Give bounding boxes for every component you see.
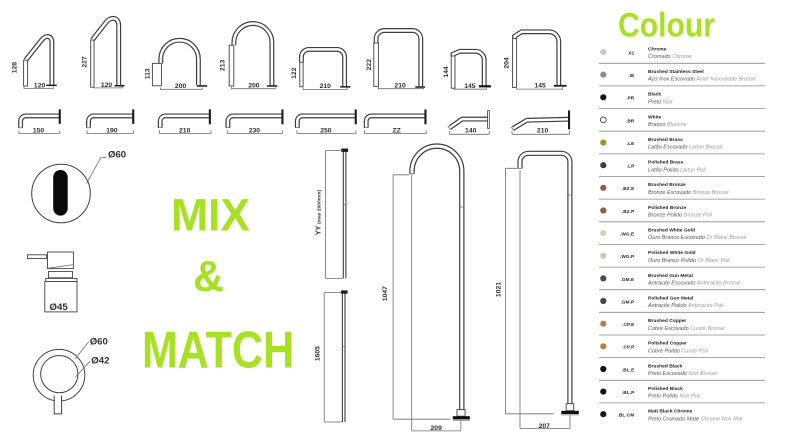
svg-text:Brushed Black: Brushed Black xyxy=(648,363,683,369)
svg-text:Polished Gun Metal: Polished Gun Metal xyxy=(648,295,694,301)
svg-text:Latão Escovado Laiton Brossé: Latão Escovado Laiton Brossé xyxy=(648,145,723,151)
svg-text:209: 209 xyxy=(431,425,443,432)
svg-text:200: 200 xyxy=(175,83,187,90)
svg-text:Aço Inox Escovado Acier Inoxyd: Aço Inox Escovado Acier Inoxydable Bross… xyxy=(647,77,756,83)
svg-text:210: 210 xyxy=(394,83,406,90)
svg-text:.BZ.E: .BZ.E xyxy=(622,186,634,191)
svg-text:120: 120 xyxy=(101,82,113,89)
svg-text:.CP.E: .CP.E xyxy=(622,322,634,327)
svg-text:150: 150 xyxy=(33,128,45,135)
svg-text:.LP: .LP xyxy=(627,164,635,169)
svg-text:.BL.E: .BL.E xyxy=(622,367,634,372)
svg-text:.GM.P: .GM.P xyxy=(621,299,635,304)
svg-text:1021: 1021 xyxy=(495,282,502,297)
svg-text:Cromado Chrome: Cromado Chrome xyxy=(648,54,692,60)
svg-text:.BL.P: .BL.P xyxy=(622,390,634,395)
svg-text:1047: 1047 xyxy=(382,286,389,301)
svg-text:.IE: .IE xyxy=(628,73,634,78)
svg-text:207: 207 xyxy=(539,423,551,430)
svg-text:Brushed Gun Metal: Brushed Gun Metal xyxy=(648,273,693,279)
svg-text:Ø45: Ø45 xyxy=(50,302,69,313)
svg-text:.LE: .LE xyxy=(627,141,635,146)
svg-text:Colour: Colour xyxy=(618,7,715,45)
svg-text:Cobre Polido Cuivre Poli: Cobre Polido Cuivre Poli xyxy=(648,348,709,354)
svg-text:222: 222 xyxy=(366,59,373,71)
svg-text:210: 210 xyxy=(537,128,549,135)
svg-text:Ø42: Ø42 xyxy=(91,356,109,367)
svg-text:.GM.E: .GM.E xyxy=(621,277,635,282)
svg-text:Cobre Escovado Cuivre Brossé: Cobre Escovado Cuivre Brossé xyxy=(648,326,725,332)
svg-text:250: 250 xyxy=(320,128,332,135)
svg-text:Preto Noir: Preto Noir xyxy=(648,99,674,105)
svg-text:.CP.P: .CP.P xyxy=(622,345,634,350)
svg-text:Polished Brass: Polished Brass xyxy=(648,160,684,166)
svg-text:Brushed Copper: Brushed Copper xyxy=(648,318,686,324)
svg-text:Latão Polido Laiton Poli: Latão Polido Laiton Poli xyxy=(648,167,707,173)
svg-text:Chrome: Chrome xyxy=(648,46,667,52)
svg-text:.WG.E: .WG.E xyxy=(620,232,634,237)
svg-text:200: 200 xyxy=(248,83,260,90)
svg-text:.PR: .PR xyxy=(626,96,635,101)
svg-text:.BR: .BR xyxy=(626,118,635,123)
svg-text:204: 204 xyxy=(504,57,511,69)
svg-text:.BZ.P: .BZ.P xyxy=(622,209,634,214)
svg-text:Antracite Polido Anthracite Po: Antracite Polido Anthracite Poli xyxy=(647,303,724,309)
svg-text:Preto Cromado Mate Chrome Noir: Preto Cromado Mate Chrome Noir Mat xyxy=(648,416,743,422)
svg-text:Brushed Bronze: Brushed Bronze xyxy=(648,182,686,188)
svg-text:Polished Copper: Polished Copper xyxy=(648,341,687,347)
svg-text:210: 210 xyxy=(179,128,191,135)
svg-text:YY (max 2000mm): YY (max 2000mm) xyxy=(316,190,323,236)
svg-text:Bronze Polido Bronze Poli: Bronze Polido Bronze Poli xyxy=(648,213,713,219)
svg-text:White: White xyxy=(648,114,662,120)
svg-text:145: 145 xyxy=(464,83,476,90)
svg-text:227: 227 xyxy=(81,56,88,68)
svg-text:.01: .01 xyxy=(627,50,634,55)
svg-text:.WG.P: .WG.P xyxy=(620,254,634,259)
svg-text:Brushed White Gold: Brushed White Gold xyxy=(648,228,695,234)
svg-text:Polished Black: Polished Black xyxy=(648,386,683,392)
svg-text:Polished Bronze: Polished Bronze xyxy=(648,205,687,211)
svg-text:1605: 1605 xyxy=(314,346,321,361)
svg-text:ZZ: ZZ xyxy=(392,128,400,135)
svg-text:213: 213 xyxy=(219,59,226,71)
svg-text:230: 230 xyxy=(249,128,261,135)
svg-text:Ø60: Ø60 xyxy=(90,336,108,347)
svg-text:MATCH: MATCH xyxy=(142,321,294,379)
svg-text:&: & xyxy=(193,252,224,301)
svg-text:Ø60: Ø60 xyxy=(108,149,126,160)
svg-text:MIX: MIX xyxy=(171,189,250,240)
svg-text:210: 210 xyxy=(320,83,332,90)
svg-text:.BL.CM: .BL.CM xyxy=(618,413,635,418)
svg-text:Matt Black Chrome: Matt Black Chrome xyxy=(648,409,693,415)
svg-text:Brushed Stainless Steel: Brushed Stainless Steel xyxy=(648,69,704,75)
svg-text:Branco Blanche: Branco Blanche xyxy=(648,122,687,128)
svg-text:Brushed Brass: Brushed Brass xyxy=(648,137,683,143)
svg-text:Black: Black xyxy=(648,92,661,98)
svg-text:Preto Escovado Noir Brossé: Preto Escovado Noir Brossé xyxy=(648,371,717,377)
svg-text:145: 145 xyxy=(534,83,546,90)
svg-text:Ouro Branco Escovado Or Blanc: Ouro Branco Escovado Or Blanc Brossé xyxy=(648,235,746,241)
svg-text:140: 140 xyxy=(465,128,477,135)
svg-text:Bronze Escovado Bronze Brossé: Bronze Escovado Bronze Brossé xyxy=(648,190,729,196)
svg-text:120: 120 xyxy=(34,82,46,89)
svg-text:Antracite Escovado Anthracite: Antracite Escovado Anthracite Brossé xyxy=(647,281,740,287)
svg-text:Preto Polido Noir Poli: Preto Polido Noir Poli xyxy=(648,394,701,400)
svg-text:Ouro Branco Polido Or Blanc Po: Ouro Branco Polido Or Blanc Poli xyxy=(648,258,730,264)
svg-text:122: 122 xyxy=(291,67,298,79)
svg-text:113: 113 xyxy=(144,68,151,79)
svg-text:128: 128 xyxy=(12,62,19,74)
svg-text:190: 190 xyxy=(106,128,118,135)
svg-text:144: 144 xyxy=(443,66,450,78)
svg-text:Polished White Gold: Polished White Gold xyxy=(648,250,696,256)
